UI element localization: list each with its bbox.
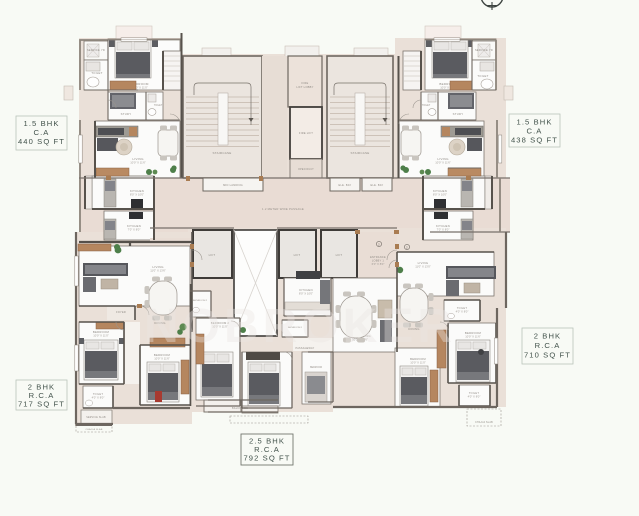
svg-text:6'0" X 8'0": 6'0" X 8'0" [372, 262, 385, 266]
svg-text:7'0" X 8'0": 7'0" X 8'0" [437, 228, 450, 232]
svg-text:4'0" X 8'0": 4'0" X 8'0" [456, 310, 469, 314]
svg-text:7'0" X 8'0": 7'0" X 8'0" [128, 228, 141, 232]
svg-text:10'0" X 11'6": 10'0" X 11'6" [435, 161, 451, 165]
svg-text:10'0" X 11'6": 10'0" X 11'6" [130, 161, 146, 165]
svg-text:FIRE LIFT: FIRE LIFT [299, 131, 313, 135]
svg-text:10'0" X 11'6": 10'0" X 11'6" [465, 335, 481, 339]
svg-text:STUDY: STUDY [121, 112, 132, 116]
svg-text:CHAJJA SLAB: CHAJJA SLAB [475, 421, 493, 424]
svg-text:TOILET: TOILET [154, 104, 163, 107]
svg-text:10'0" X 11'0": 10'0" X 11'0" [93, 334, 109, 338]
svg-text:FOYER: FOYER [116, 311, 126, 314]
svg-text:1.5 BHK: 1.5 BHK [517, 118, 553, 127]
svg-text:8'0" X 10'0": 8'0" X 10'0" [299, 292, 313, 296]
svg-text:LIFT: LIFT [209, 253, 216, 257]
svg-text:10'0" X 11'6": 10'0" X 11'6" [154, 357, 170, 361]
svg-text:710 SQ FT: 710 SQ FT [524, 351, 571, 360]
svg-text:2 BHK: 2 BHK [534, 332, 561, 341]
svg-text:2: 2 [406, 246, 408, 250]
svg-text:11'0" X 13'6": 11'0" X 13'6" [150, 269, 166, 273]
svg-text:MID LANDING: MID LANDING [223, 183, 243, 187]
svg-text:1.5 BHK: 1.5 BHK [24, 119, 60, 128]
svg-text:792 SQ FT: 792 SQ FT [243, 454, 290, 463]
svg-text:LIFT: LIFT [336, 253, 343, 257]
svg-text:R.C.A: R.C.A [535, 341, 561, 350]
svg-text:8'0" X 10'0": 8'0" X 10'0" [130, 193, 144, 197]
svg-text:1.2 METER WIDE PASSAGE: 1.2 METER WIDE PASSAGE [262, 207, 304, 211]
svg-text:10'0" X 11'0": 10'0" X 11'0" [410, 361, 426, 365]
svg-text:717 SQ FT: 717 SQ FT [18, 400, 65, 409]
svg-text:CHAJJA SLAB: CHAJJA SLAB [85, 428, 102, 431]
svg-text:4'0" X 8'0": 4'0" X 8'0" [92, 396, 105, 400]
svg-text:8'0" X 10'0": 8'0" X 10'0" [433, 193, 447, 197]
svg-text:2: 2 [378, 243, 380, 247]
svg-text:TOILET: TOILET [477, 74, 488, 78]
svg-text:SERVICE YD: SERVICE YD [87, 48, 105, 52]
svg-text:11'0" X 13'0": 11'0" X 13'0" [415, 265, 431, 269]
svg-text:STAIRCASE: STAIRCASE [350, 151, 369, 155]
svg-text:TOILET: TOILET [91, 71, 102, 75]
svg-text:LIFT: LIFT [294, 253, 301, 257]
svg-text:TOILET: TOILET [422, 104, 431, 107]
svg-text:SERVICE SLAB: SERVICE SLAB [86, 416, 106, 419]
svg-text:ELE. BAY: ELE. BAY [339, 184, 352, 187]
svg-text:NOBROKER: NOBROKER [144, 300, 456, 353]
svg-text:ELE. BAY: ELE. BAY [371, 184, 384, 187]
svg-text:C.A: C.A [527, 127, 543, 136]
svg-text:FIRE: FIRE [302, 81, 309, 85]
svg-text:LIFT LOBBY: LIFT LOBBY [296, 85, 313, 89]
svg-text:BEDROOM: BEDROOM [310, 367, 322, 369]
svg-text:SERVICE YD: SERVICE YD [475, 48, 493, 52]
svg-text:STAIRCASE: STAIRCASE [212, 151, 231, 155]
svg-text:STUDY: STUDY [453, 112, 464, 116]
svg-text:4'0" X 8'0": 4'0" X 8'0" [468, 395, 481, 399]
svg-text:438 SQ FT: 438 SQ FT [511, 136, 558, 145]
svg-text:OPEN DUCT: OPEN DUCT [298, 169, 314, 171]
svg-text:440 SQ FT: 440 SQ FT [18, 137, 65, 146]
svg-text:C.A: C.A [34, 128, 50, 137]
